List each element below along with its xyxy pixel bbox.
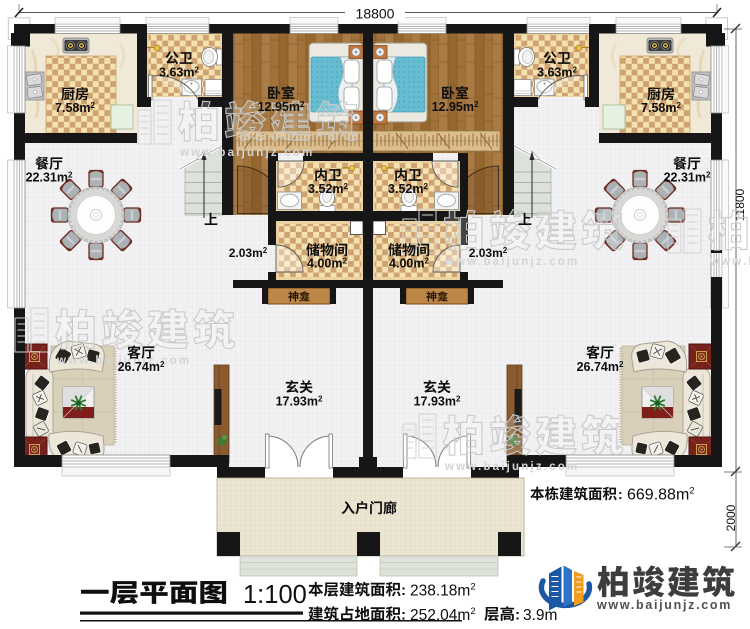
svg-text:7.58m2: 7.58m2: [55, 101, 95, 115]
svg-text:26.74m2: 26.74m2: [577, 360, 624, 374]
svg-text:3.63m2: 3.63m2: [159, 66, 199, 80]
svg-text:18800: 18800: [356, 6, 395, 22]
svg-text:669.88m2: 669.88m2: [627, 486, 695, 504]
svg-text:2.03m2: 2.03m2: [229, 246, 268, 260]
svg-text::: :: [515, 607, 520, 624]
svg-text:17.93m2: 17.93m2: [414, 395, 461, 409]
svg-text:www.baijunjz.com: www.baijunjz.com: [596, 598, 732, 612]
svg-text:4.00m2: 4.00m2: [389, 257, 429, 271]
svg-text:2.03m2: 2.03m2: [469, 246, 508, 260]
svg-text:22.31m2: 22.31m2: [26, 171, 73, 185]
svg-text:252.04m2: 252.04m2: [410, 606, 476, 624]
svg-text:3.52m2: 3.52m2: [388, 182, 428, 196]
svg-text:3.52m2: 3.52m2: [308, 182, 348, 196]
svg-text:12.95m2: 12.95m2: [258, 100, 305, 114]
svg-text::: :: [401, 607, 406, 624]
svg-text::: :: [618, 486, 623, 502]
svg-text:17.93m2: 17.93m2: [276, 395, 323, 409]
svg-text:3.63m2: 3.63m2: [537, 66, 577, 80]
svg-text::: :: [401, 582, 406, 599]
svg-text:1:100: 1:100: [243, 581, 307, 609]
svg-text:2000: 2000: [724, 504, 738, 531]
svg-text:4.00m2: 4.00m2: [307, 257, 347, 271]
svg-text:238.18m2: 238.18m2: [410, 582, 476, 600]
svg-text:22.31m2: 22.31m2: [664, 171, 711, 185]
svg-text:3.9m: 3.9m: [523, 607, 557, 624]
svg-text:26.74m2: 26.74m2: [118, 360, 165, 374]
svg-text:7.58m2: 7.58m2: [641, 101, 681, 115]
svg-text:12.95m2: 12.95m2: [432, 100, 479, 114]
